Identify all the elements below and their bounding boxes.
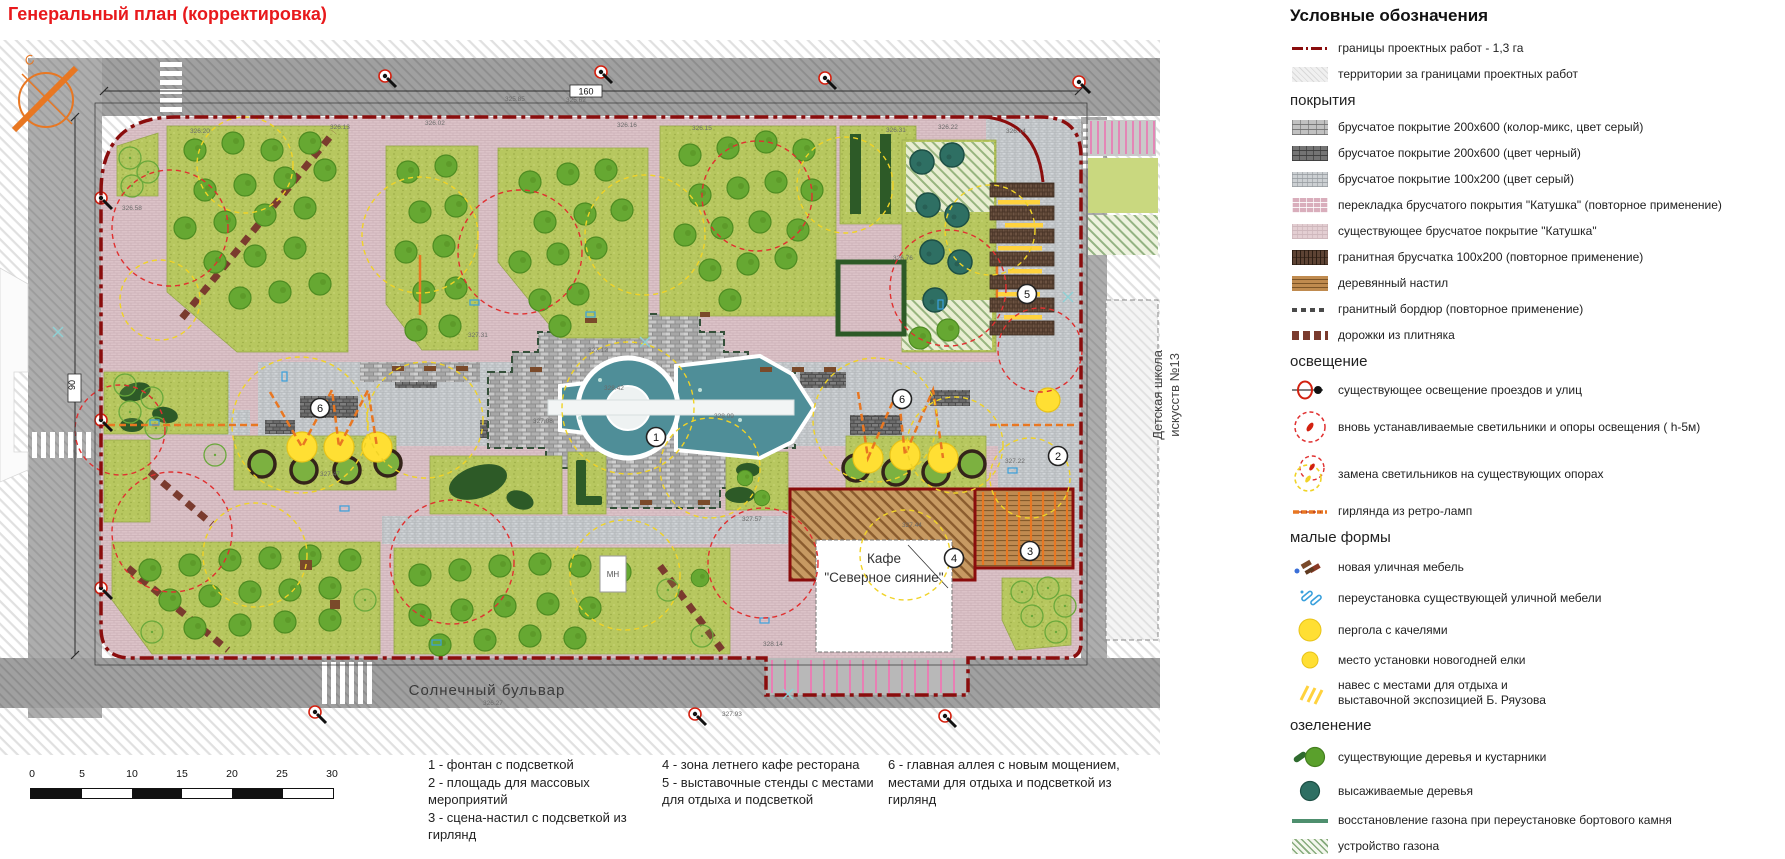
marker-6-right: 6: [899, 394, 905, 406]
katushka-existing-icon: [1292, 224, 1328, 239]
existing-light-icon: [1290, 380, 1330, 400]
legend-item-c7: деревянный настил: [1290, 275, 1780, 292]
legend-item-c9: дорожки из плитняка: [1290, 327, 1780, 344]
new-furniture-icon: [1290, 556, 1330, 578]
legend-item-s3: пергола с качелями: [1290, 618, 1780, 642]
legend-item-g4: устройство газона: [1290, 838, 1780, 855]
boundary-line-icon: [1292, 47, 1328, 50]
pergola-icon: [1290, 618, 1330, 642]
marker-3: 3: [1027, 546, 1033, 558]
granite-kerb-icon: [1292, 308, 1328, 312]
svg-text:327.22: 327.22: [1005, 458, 1025, 465]
svg-text:327.31: 327.31: [468, 332, 488, 339]
legend-item-c3: брусчатое покрытие 100х200 (цвет серый): [1290, 171, 1780, 188]
street-label: Солнечный бульвар: [409, 682, 566, 699]
legend-item-l1: существующее освещение проездов и улиц: [1290, 380, 1780, 400]
mn-box: МН: [600, 556, 626, 592]
legend-item-g3: восстановление газона при переустановке …: [1290, 812, 1780, 829]
legend-item-c5: существующее брусчатое покрытие "Катушка…: [1290, 223, 1780, 240]
legend-item-l3: замена светильников на существующих опор…: [1290, 454, 1780, 494]
parking-bottom: [766, 658, 968, 695]
svg-text:327.93: 327.93: [722, 711, 742, 718]
legend-item-s4: место установки новогодней елки: [1290, 651, 1780, 669]
svg-text:325.62: 325.62: [566, 97, 586, 104]
legend-item-g1: существующие деревья и кустарники: [1290, 744, 1780, 770]
marker-1: 1: [653, 432, 659, 444]
dim-top-label: 160: [578, 87, 593, 97]
legend-item-s5: навес с местами для отдыха ивыставочной …: [1290, 678, 1780, 708]
wood-deck-icon: [1292, 276, 1328, 291]
legend-section-coverings: покрытия: [1290, 92, 1780, 109]
svg-text:326.20: 326.20: [190, 128, 210, 135]
svg-text:327.44: 327.44: [902, 522, 922, 529]
parking-top-right: [1088, 120, 1158, 255]
legend-title: Условные обозначения: [1290, 6, 1780, 26]
planted-trees-icon: [1290, 779, 1330, 803]
brick-black-icon: [1292, 146, 1328, 161]
page-title: Генеральный план (корректировка): [8, 4, 327, 25]
svg-text:326.22: 326.22: [938, 124, 958, 131]
katushka-relay-icon: [1292, 198, 1328, 213]
svg-text:325.85: 325.85: [505, 96, 525, 103]
marker-2: 2: [1055, 451, 1061, 463]
exhibition-stands: [990, 183, 1054, 335]
canopy-icon: [1290, 680, 1330, 706]
relocate-furniture-icon: [1290, 587, 1330, 609]
legend-item-c8: гранитный бордюр (повторное применение): [1290, 301, 1780, 318]
genplan-sheet: Генеральный план (корректировка): [0, 0, 1785, 859]
legend-section-greening: озеленение: [1290, 717, 1780, 734]
marker-5: 5: [1024, 289, 1030, 301]
scale-bar: 0 5 10 15 20 25 30: [30, 768, 370, 808]
svg-text:327.57: 327.57: [742, 516, 762, 523]
svg-text:326.02: 326.02: [425, 120, 445, 127]
svg-text:326.76: 326.76: [893, 255, 913, 262]
svg-text:326.15: 326.15: [692, 125, 712, 132]
legend-item-c2: брусчатое покрытие 200х600 (цвет черный): [1290, 145, 1780, 162]
marker-4: 4: [951, 553, 957, 565]
svg-text:328.14: 328.14: [763, 641, 783, 648]
cafe-label-line1: Кафе: [867, 551, 901, 566]
cafe-label-line2: "Северное сияние": [824, 570, 943, 585]
dim-left-label: 90: [67, 380, 77, 390]
svg-text:326.58: 326.58: [122, 205, 142, 212]
legend-section-lighting: освещение: [1290, 353, 1780, 370]
existing-trees-icon: [1290, 744, 1330, 770]
replace-light-icon: [1290, 454, 1330, 494]
garland-icon: [1290, 506, 1330, 518]
legend-item-c6: гранитная брусчатка 100х200 (повторное п…: [1290, 249, 1780, 266]
legend-item-s2: переустановка существующей уличной мебел…: [1290, 587, 1780, 609]
scale-bar-segments: [30, 788, 334, 799]
marker-6-left: 6: [317, 403, 323, 415]
svg-text:326.27: 326.27: [483, 700, 503, 707]
master-plan-drawing: Кафе "Северное сияние": [0, 40, 1160, 755]
lawn-restore-icon: [1292, 819, 1328, 823]
flagstone-path-icon: [1292, 331, 1328, 340]
svg-text:327.12: 327.12: [588, 347, 608, 354]
new-year-tree-icon: [1290, 651, 1330, 669]
svg-text:327.08: 327.08: [533, 418, 553, 425]
legend-item-l4: гирлянда из ретро-ламп: [1290, 503, 1780, 520]
svg-text:326.31: 326.31: [886, 127, 906, 134]
school-label-line2: искусств №13: [1167, 350, 1184, 440]
svg-text:326.16: 326.16: [617, 122, 637, 129]
brick-gray-icon: [1292, 172, 1328, 187]
brick-mix-icon: [1292, 120, 1328, 135]
legend-item-territory: территории за границами проектных работ: [1290, 66, 1780, 83]
svg-text:328.09: 328.09: [714, 413, 734, 420]
svg-text:326.13: 326.13: [330, 124, 350, 131]
master-plan-svg: Кафе "Северное сияние": [0, 40, 1160, 755]
legend-item-s1: новая уличная мебель: [1290, 556, 1780, 578]
legend-item-g2: высаживаемые деревья: [1290, 779, 1780, 803]
notes-column-2: 4 - зона летнего кафе ресторана 5 - выст…: [662, 756, 874, 809]
notes-column-3: 6 - главная аллея с новым мощением, мест…: [888, 756, 1120, 809]
legend-section-small-forms: малые формы: [1290, 529, 1780, 546]
svg-text:МН: МН: [607, 570, 620, 579]
lawn-new-icon: [1292, 839, 1328, 854]
svg-text:328.42: 328.42: [604, 385, 624, 392]
svg-text:326.14: 326.14: [1006, 128, 1026, 135]
new-light-icon: [1290, 409, 1330, 445]
legend-item-c1: брусчатое покрытие 200х600 (колор-микс, …: [1290, 119, 1780, 136]
notes-column-1: 1 - фонтан с подсветкой 2 - площадь для …: [428, 756, 627, 844]
svg-text:327.47: 327.47: [320, 471, 340, 478]
legend: Условные обозначения границы проектных р…: [1290, 6, 1780, 859]
legend-item-c4: перекладка брусчатого покрытия "Катушка"…: [1290, 197, 1780, 214]
legend-item-l2: вновь устанавливаемые светильники и опор…: [1290, 409, 1780, 445]
granite-pavers-icon: [1292, 250, 1328, 265]
territory-hatch-icon: [1292, 67, 1328, 82]
legend-item-boundary: границы проектных работ - 1,3 га: [1290, 40, 1780, 57]
school-building: [1106, 300, 1158, 640]
